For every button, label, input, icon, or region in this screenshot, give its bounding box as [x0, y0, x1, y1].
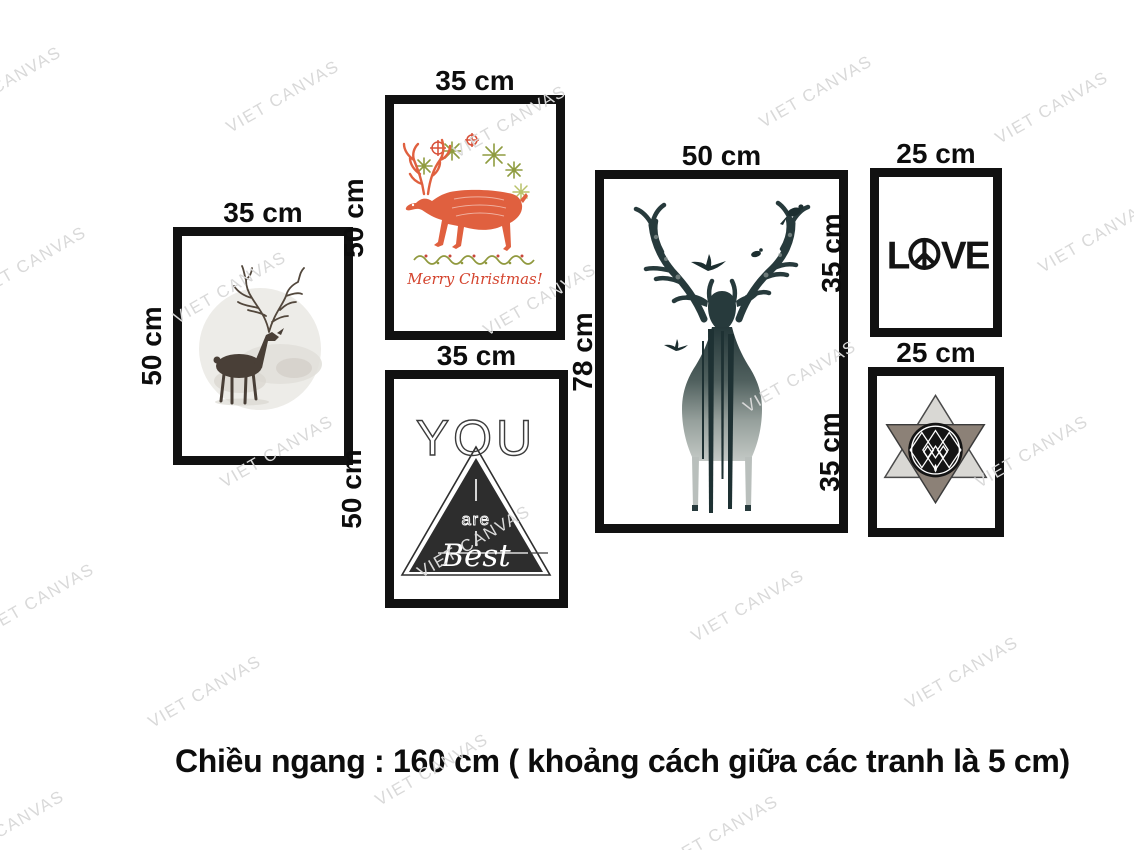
watermark-text: VIET CANVAS: [688, 565, 808, 646]
watermark-text: VIET CANVAS: [0, 786, 68, 850]
watermark-text: VIET CANVAS: [0, 42, 65, 123]
watermark-layer: VIET CANVASVIET CANVASVIET CANVASVIET CA…: [0, 0, 1134, 850]
watermark-text: VIET CANVAS: [972, 411, 1092, 492]
watermark-text: VIET CANVAS: [992, 67, 1112, 148]
watermark-text: VIET CANVAS: [145, 651, 265, 732]
watermark-text: VIET CANVAS: [0, 559, 98, 640]
watermark-text: VIET CANVAS: [450, 81, 570, 162]
watermark-text: VIET CANVAS: [170, 247, 290, 328]
watermark-text: VIET CANVAS: [756, 51, 876, 132]
watermark-text: VIET CANVAS: [480, 259, 600, 340]
watermark-text: VIET CANVAS: [217, 411, 337, 492]
watermark-text: VIET CANVAS: [662, 791, 782, 850]
poster-layout-diagram: 35 cm 50 cm 35 cm 50 cm: [0, 0, 1134, 850]
watermark-text: VIET CANVAS: [0, 222, 90, 303]
watermark-text: VIET CANVAS: [902, 632, 1022, 713]
watermark-text: VIET CANVAS: [372, 729, 492, 810]
watermark-text: VIET CANVAS: [223, 56, 343, 137]
watermark-text: VIET CANVAS: [414, 501, 534, 582]
watermark-text: VIET CANVAS: [1035, 196, 1134, 277]
watermark-text: VIET CANVAS: [740, 336, 860, 417]
